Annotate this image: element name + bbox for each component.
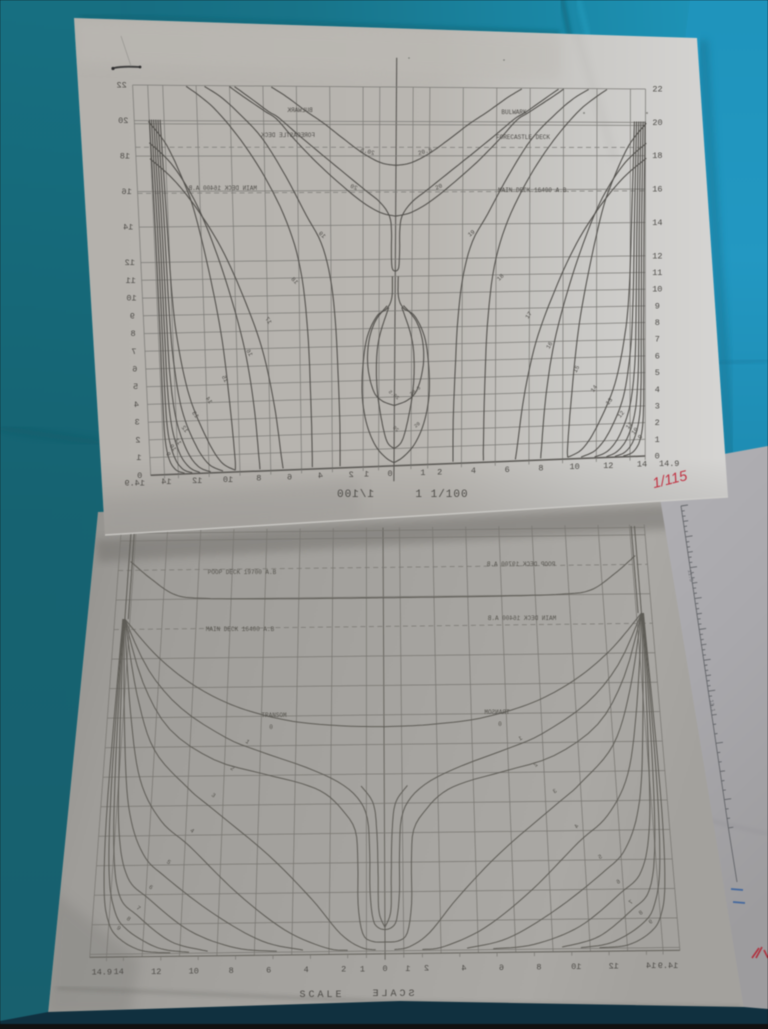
svg-text:1: 1 — [655, 435, 660, 445]
svg-text:4: 4 — [318, 471, 323, 481]
svg-text:10: 10 — [569, 462, 579, 472]
svg-text:16: 16 — [652, 185, 662, 195]
svg-text:11: 11 — [126, 276, 136, 286]
svg-text:8: 8 — [131, 329, 136, 339]
svg-text:TRANSOM: TRANSOM — [261, 712, 287, 719]
svg-text:BULWARK: BULWARK — [501, 109, 527, 116]
svg-text:8: 8 — [256, 474, 261, 484]
svg-text:MAIN DECK 16400 A.B.: MAIN DECK 16400 A.B. — [185, 185, 257, 192]
svg-text:10: 10 — [223, 475, 233, 485]
svg-text:8: 8 — [536, 962, 541, 972]
svg-text:10: 10 — [126, 294, 136, 304]
svg-text:0: 0 — [387, 469, 392, 479]
svg-text:3: 3 — [655, 401, 660, 411]
svg-text:14.9: 14.9 — [658, 961, 678, 971]
svg-text:1/100: 1/100 — [336, 489, 374, 501]
svg-text:BULWARK: BULWARK — [287, 107, 313, 114]
svg-text:6: 6 — [266, 966, 271, 976]
svg-text:14: 14 — [652, 218, 662, 228]
svg-text:MAIN DECK 16400 A.B: MAIN DECK 16400 A.B — [487, 615, 556, 622]
svg-text:14: 14 — [637, 460, 647, 470]
svg-text:4: 4 — [304, 965, 309, 975]
svg-text:FORECASTLE DECK: FORECASTLE DECK — [496, 134, 550, 141]
svg-text:14.9: 14.9 — [659, 459, 679, 469]
svg-text:1: 1 — [364, 469, 369, 479]
svg-text:TRANSOM: TRANSOM — [484, 709, 510, 716]
svg-text:6: 6 — [505, 465, 510, 475]
svg-text:MAIN DECK 16400 A.B.: MAIN DECK 16400 A.B. — [498, 187, 570, 194]
svg-text:1: 1 — [405, 964, 410, 974]
svg-text:18: 18 — [120, 152, 130, 162]
svg-text:6: 6 — [287, 472, 292, 482]
svg-text:8: 8 — [229, 966, 234, 976]
svg-text:4: 4 — [471, 466, 476, 476]
svg-text:12: 12 — [192, 476, 202, 486]
svg-text:1 1/100: 1 1/100 — [415, 489, 468, 501]
svg-text:14: 14 — [161, 477, 171, 487]
svg-text:2: 2 — [655, 418, 660, 428]
svg-text:10: 10 — [571, 962, 581, 972]
svg-text:14: 14 — [123, 223, 133, 233]
svg-text:22: 22 — [652, 85, 662, 95]
svg-text:14: 14 — [114, 967, 124, 977]
svg-text:0: 0 — [383, 964, 388, 974]
svg-text:12: 12 — [609, 962, 619, 972]
svg-text:6: 6 — [132, 365, 137, 375]
svg-text:10: 10 — [189, 966, 199, 976]
svg-text:16: 16 — [121, 187, 131, 197]
svg-text:2: 2 — [437, 468, 442, 478]
svg-text:MAIN DECK 16400 A.B: MAIN DECK 16400 A.B — [206, 626, 275, 633]
svg-text:1: 1 — [360, 964, 365, 974]
svg-text:14.9: 14.9 — [92, 967, 112, 977]
svg-text:4: 4 — [655, 385, 660, 395]
svg-text:12: 12 — [125, 258, 135, 268]
svg-text:FORECASTLE DECK: FORECASTLE DECK — [261, 132, 315, 139]
svg-text:6: 6 — [655, 351, 660, 361]
svg-text:14.9: 14.9 — [124, 478, 144, 488]
svg-text:SCALE: SCALE — [369, 989, 414, 1000]
svg-text:9: 9 — [130, 311, 135, 321]
svg-text:5: 5 — [133, 382, 138, 392]
svg-text:20: 20 — [118, 116, 128, 126]
svg-text:7: 7 — [655, 335, 660, 345]
svg-text:2: 2 — [349, 470, 354, 480]
svg-text:14: 14 — [646, 961, 656, 971]
svg-text:2: 2 — [135, 435, 140, 445]
svg-text:22: 22 — [116, 81, 126, 91]
svg-text:12: 12 — [603, 461, 613, 471]
svg-text:0: 0 — [269, 724, 273, 731]
svg-text:2: 2 — [424, 964, 429, 974]
svg-text:9: 9 — [655, 301, 660, 311]
svg-text:POOP DECK 19700 A.B: POOP DECK 19700 A.B — [486, 561, 555, 568]
svg-text:SCALE: SCALE — [299, 990, 344, 1001]
svg-text:8: 8 — [655, 318, 660, 328]
svg-text:12: 12 — [151, 967, 161, 977]
svg-text:18: 18 — [652, 151, 662, 161]
svg-text:2: 2 — [341, 965, 346, 975]
svg-text:4: 4 — [134, 400, 139, 410]
svg-text:5: 5 — [655, 368, 660, 378]
svg-text:1: 1 — [420, 468, 425, 478]
svg-text:6: 6 — [499, 963, 504, 973]
svg-text:8: 8 — [538, 464, 543, 474]
svg-text:0: 0 — [498, 721, 502, 728]
svg-text:11: 11 — [652, 268, 662, 278]
svg-text:7: 7 — [131, 347, 136, 357]
svg-text:1: 1 — [136, 453, 141, 463]
svg-text:3: 3 — [135, 418, 140, 428]
svg-text:4: 4 — [461, 963, 466, 973]
svg-text:20: 20 — [652, 118, 662, 128]
svg-text:12: 12 — [652, 251, 662, 261]
svg-text:POOP DECK 19700 A.B: POOP DECK 19700 A.B — [208, 569, 277, 576]
svg-text:10: 10 — [652, 285, 662, 295]
